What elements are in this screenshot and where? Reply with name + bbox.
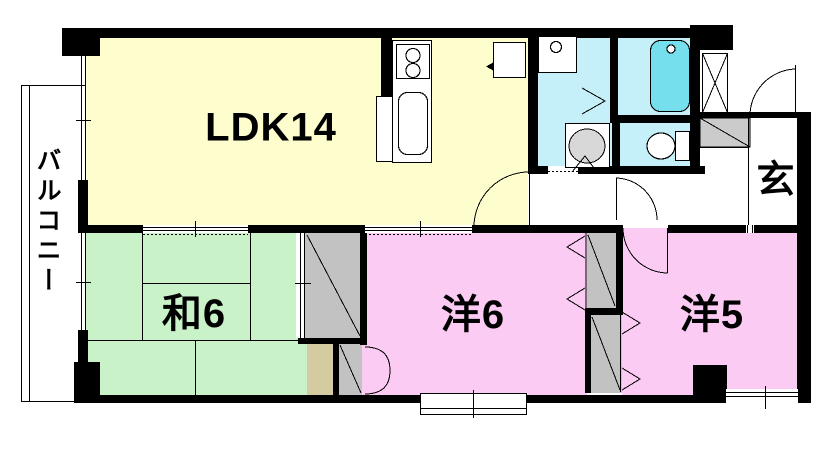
- wall-closet-b-left: [585, 315, 591, 393]
- kitchen-sink: [399, 93, 428, 155]
- wall-storage-divider: [333, 343, 339, 396]
- wall-left-lower: [78, 330, 88, 365]
- pillar-top-left: [62, 28, 100, 56]
- door-toilet: [616, 178, 657, 220]
- storage-floor: [307, 343, 333, 396]
- entrance-label: 玄: [756, 149, 795, 204]
- wall-closet-divider: [298, 338, 362, 344]
- wall-mid-d: [668, 225, 746, 233]
- duct-notch: [746, 225, 754, 233]
- wall-mid-e: [754, 225, 802, 233]
- toilet-tank: [676, 132, 690, 161]
- vanity-sink: [566, 124, 610, 168]
- wall-kitchen-stub: [381, 38, 392, 97]
- wall-bath-bottom: [610, 115, 700, 123]
- wall-mid-a: [85, 225, 143, 233]
- toilet-bowl: [647, 133, 675, 159]
- floor-plan-drawing: [0, 0, 824, 451]
- wall-mid-b: [248, 225, 365, 233]
- pillar-bottom-left: [74, 362, 100, 397]
- washing-machine-pan: [539, 37, 577, 73]
- pillar-western5: [693, 365, 727, 395]
- wall-closet-right: [360, 225, 367, 345]
- floor-plan: バルコニー LDK14 和6 洋6 洋5 玄: [0, 0, 824, 451]
- shoe-cabinet: [703, 54, 728, 113]
- drain-icon: [667, 45, 675, 53]
- bottom-window-western5: [726, 386, 798, 409]
- wall-mid-c: [472, 225, 623, 233]
- wall-right: [797, 112, 811, 403]
- wall-closet-b-divider: [585, 308, 622, 315]
- burner-icon: [406, 49, 420, 63]
- entrance-step: [700, 118, 750, 147]
- wall-washroom-toilet: [612, 121, 620, 168]
- burner-icon: [406, 64, 420, 78]
- western-room-5-label: 洋5: [680, 282, 744, 340]
- entrance-door: [750, 65, 796, 117]
- bathtub: [651, 41, 690, 112]
- wall-top: [62, 28, 733, 38]
- pillar-entrance-top: [690, 25, 733, 50]
- wall-ldk-washroom: [528, 28, 538, 174]
- bay-window-western6: [421, 390, 527, 418]
- wall-left-upper: [78, 180, 88, 233]
- ldk-label: LDK14: [205, 106, 337, 151]
- japanese-room-label: 和6: [162, 281, 226, 339]
- drain-icon: [551, 42, 562, 53]
- balcony-label: バルコニー: [29, 147, 65, 297]
- wall-washroom-bath: [610, 36, 618, 117]
- western-room-6-label: 洋6: [441, 282, 505, 340]
- wall-western-divider: [616, 225, 623, 315]
- toilet: [647, 132, 690, 161]
